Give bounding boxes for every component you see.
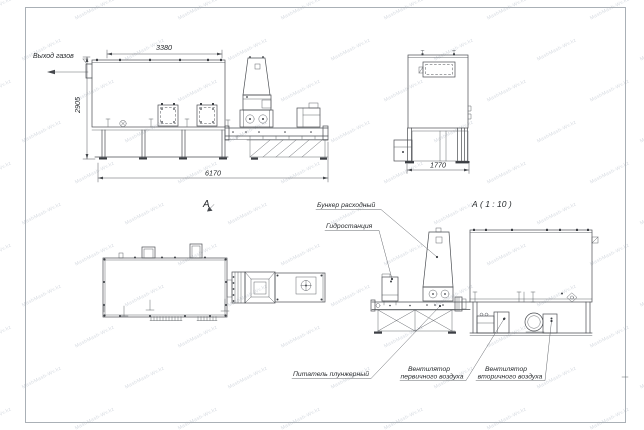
end-lower-frame (412, 131, 468, 161)
plan-bolt-dots (103, 257, 227, 318)
feeder-label: Питатель плунжерный (293, 370, 369, 378)
plan-top-stubs (119, 244, 202, 258)
truss-rear (374, 310, 456, 334)
bunker-tower-rear (423, 228, 453, 301)
dimension-6170: 6170 (98, 142, 328, 182)
gas-flow-arrow (47, 70, 88, 74)
furnace-body (92, 59, 225, 127)
callout-fan-secondary: Вентилятор вторичного воздуха (476, 320, 553, 381)
drawing-sheet: MashMash-Wv.kzMashMash-Wv.kzMashMash-Wv.… (0, 0, 644, 430)
bunker-label: Бункер расходный (317, 201, 375, 209)
plan-feeder-flange (227, 272, 245, 303)
drawing-canvas: 3380 2905 6170 Выход газов (0, 0, 644, 430)
hatch-door-1 (158, 103, 178, 126)
valve-handwheel (120, 120, 126, 126)
hydro-station-box (382, 274, 398, 305)
dim-2905-text: 2905 (73, 96, 82, 114)
plan-anchor-marks (104, 299, 229, 316)
end-hatch (419, 62, 455, 77)
dim-3380-text: 3380 (156, 43, 172, 52)
dimension-3380: 3380 (107, 43, 222, 58)
view-side-rear (371, 228, 598, 336)
drive-box (297, 103, 320, 127)
view-side-main: 3380 2905 6170 Выход газов (33, 43, 328, 182)
view-a-scale-title: А ( 1 : 10 ) (471, 199, 512, 209)
secondary-air-fan (525, 313, 557, 333)
fan-primary-label-line2: первичного воздуха (401, 373, 464, 381)
callout-hydro: Гидростанция (325, 222, 393, 280)
end-hinges (468, 106, 471, 119)
hatch-door-2 (197, 103, 217, 126)
bunker-tower (240, 56, 273, 127)
base-frame (92, 130, 228, 160)
plan-fan-box (275, 273, 325, 302)
feeder-flange-rear (455, 297, 466, 311)
end-legs (405, 128, 470, 163)
feeder-tube (225, 126, 328, 140)
furnace-body-rear (470, 229, 598, 302)
gas-outlet-label: Выход газов (33, 52, 74, 60)
plan-bunker-top (245, 272, 275, 303)
primary-air-fan (477, 312, 509, 333)
view-plan (103, 244, 325, 321)
dim-6170-text: 6170 (205, 169, 221, 178)
view-end: 1770 (394, 51, 471, 174)
hydro-label: Гидростанция (326, 222, 373, 230)
support-truss (247, 140, 328, 160)
fan-secondary-label-line2: вторичного воздуха (478, 373, 543, 381)
fan-primary-label-line1: Вентилятор (408, 366, 450, 373)
end-side-box (394, 140, 412, 161)
fan-secondary-label-line1: Вентилятор (485, 366, 527, 373)
dim-1770-text: 1770 (430, 161, 446, 170)
